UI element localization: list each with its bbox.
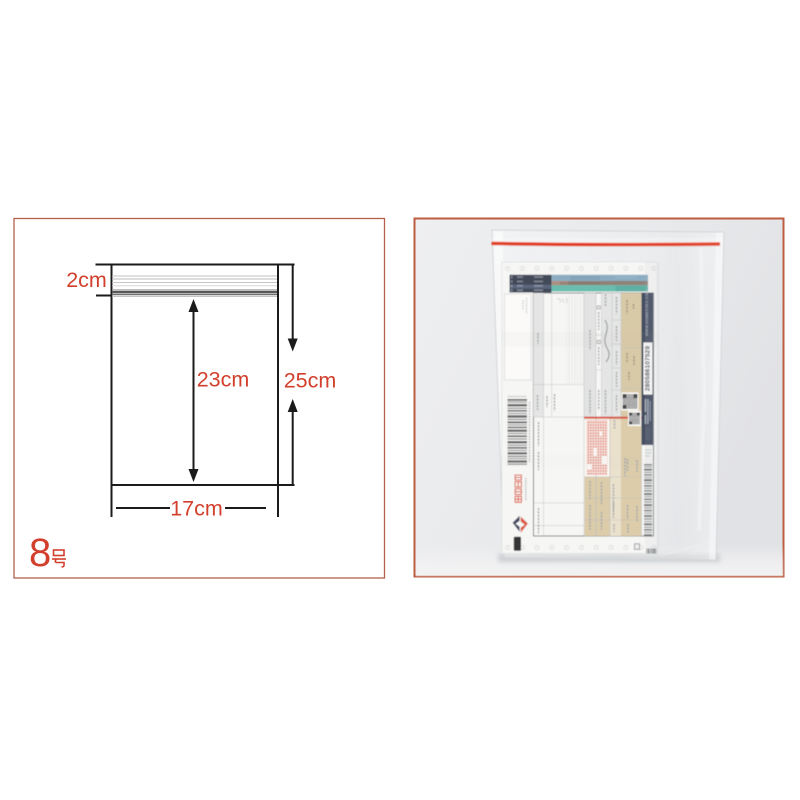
svg-text:8: 8 xyxy=(29,531,51,575)
svg-text:25cm: 25cm xyxy=(284,369,337,393)
svg-text:23cm: 23cm xyxy=(197,368,250,392)
svg-text:2cm: 2cm xyxy=(66,268,107,292)
svg-text:17cm: 17cm xyxy=(170,497,223,521)
